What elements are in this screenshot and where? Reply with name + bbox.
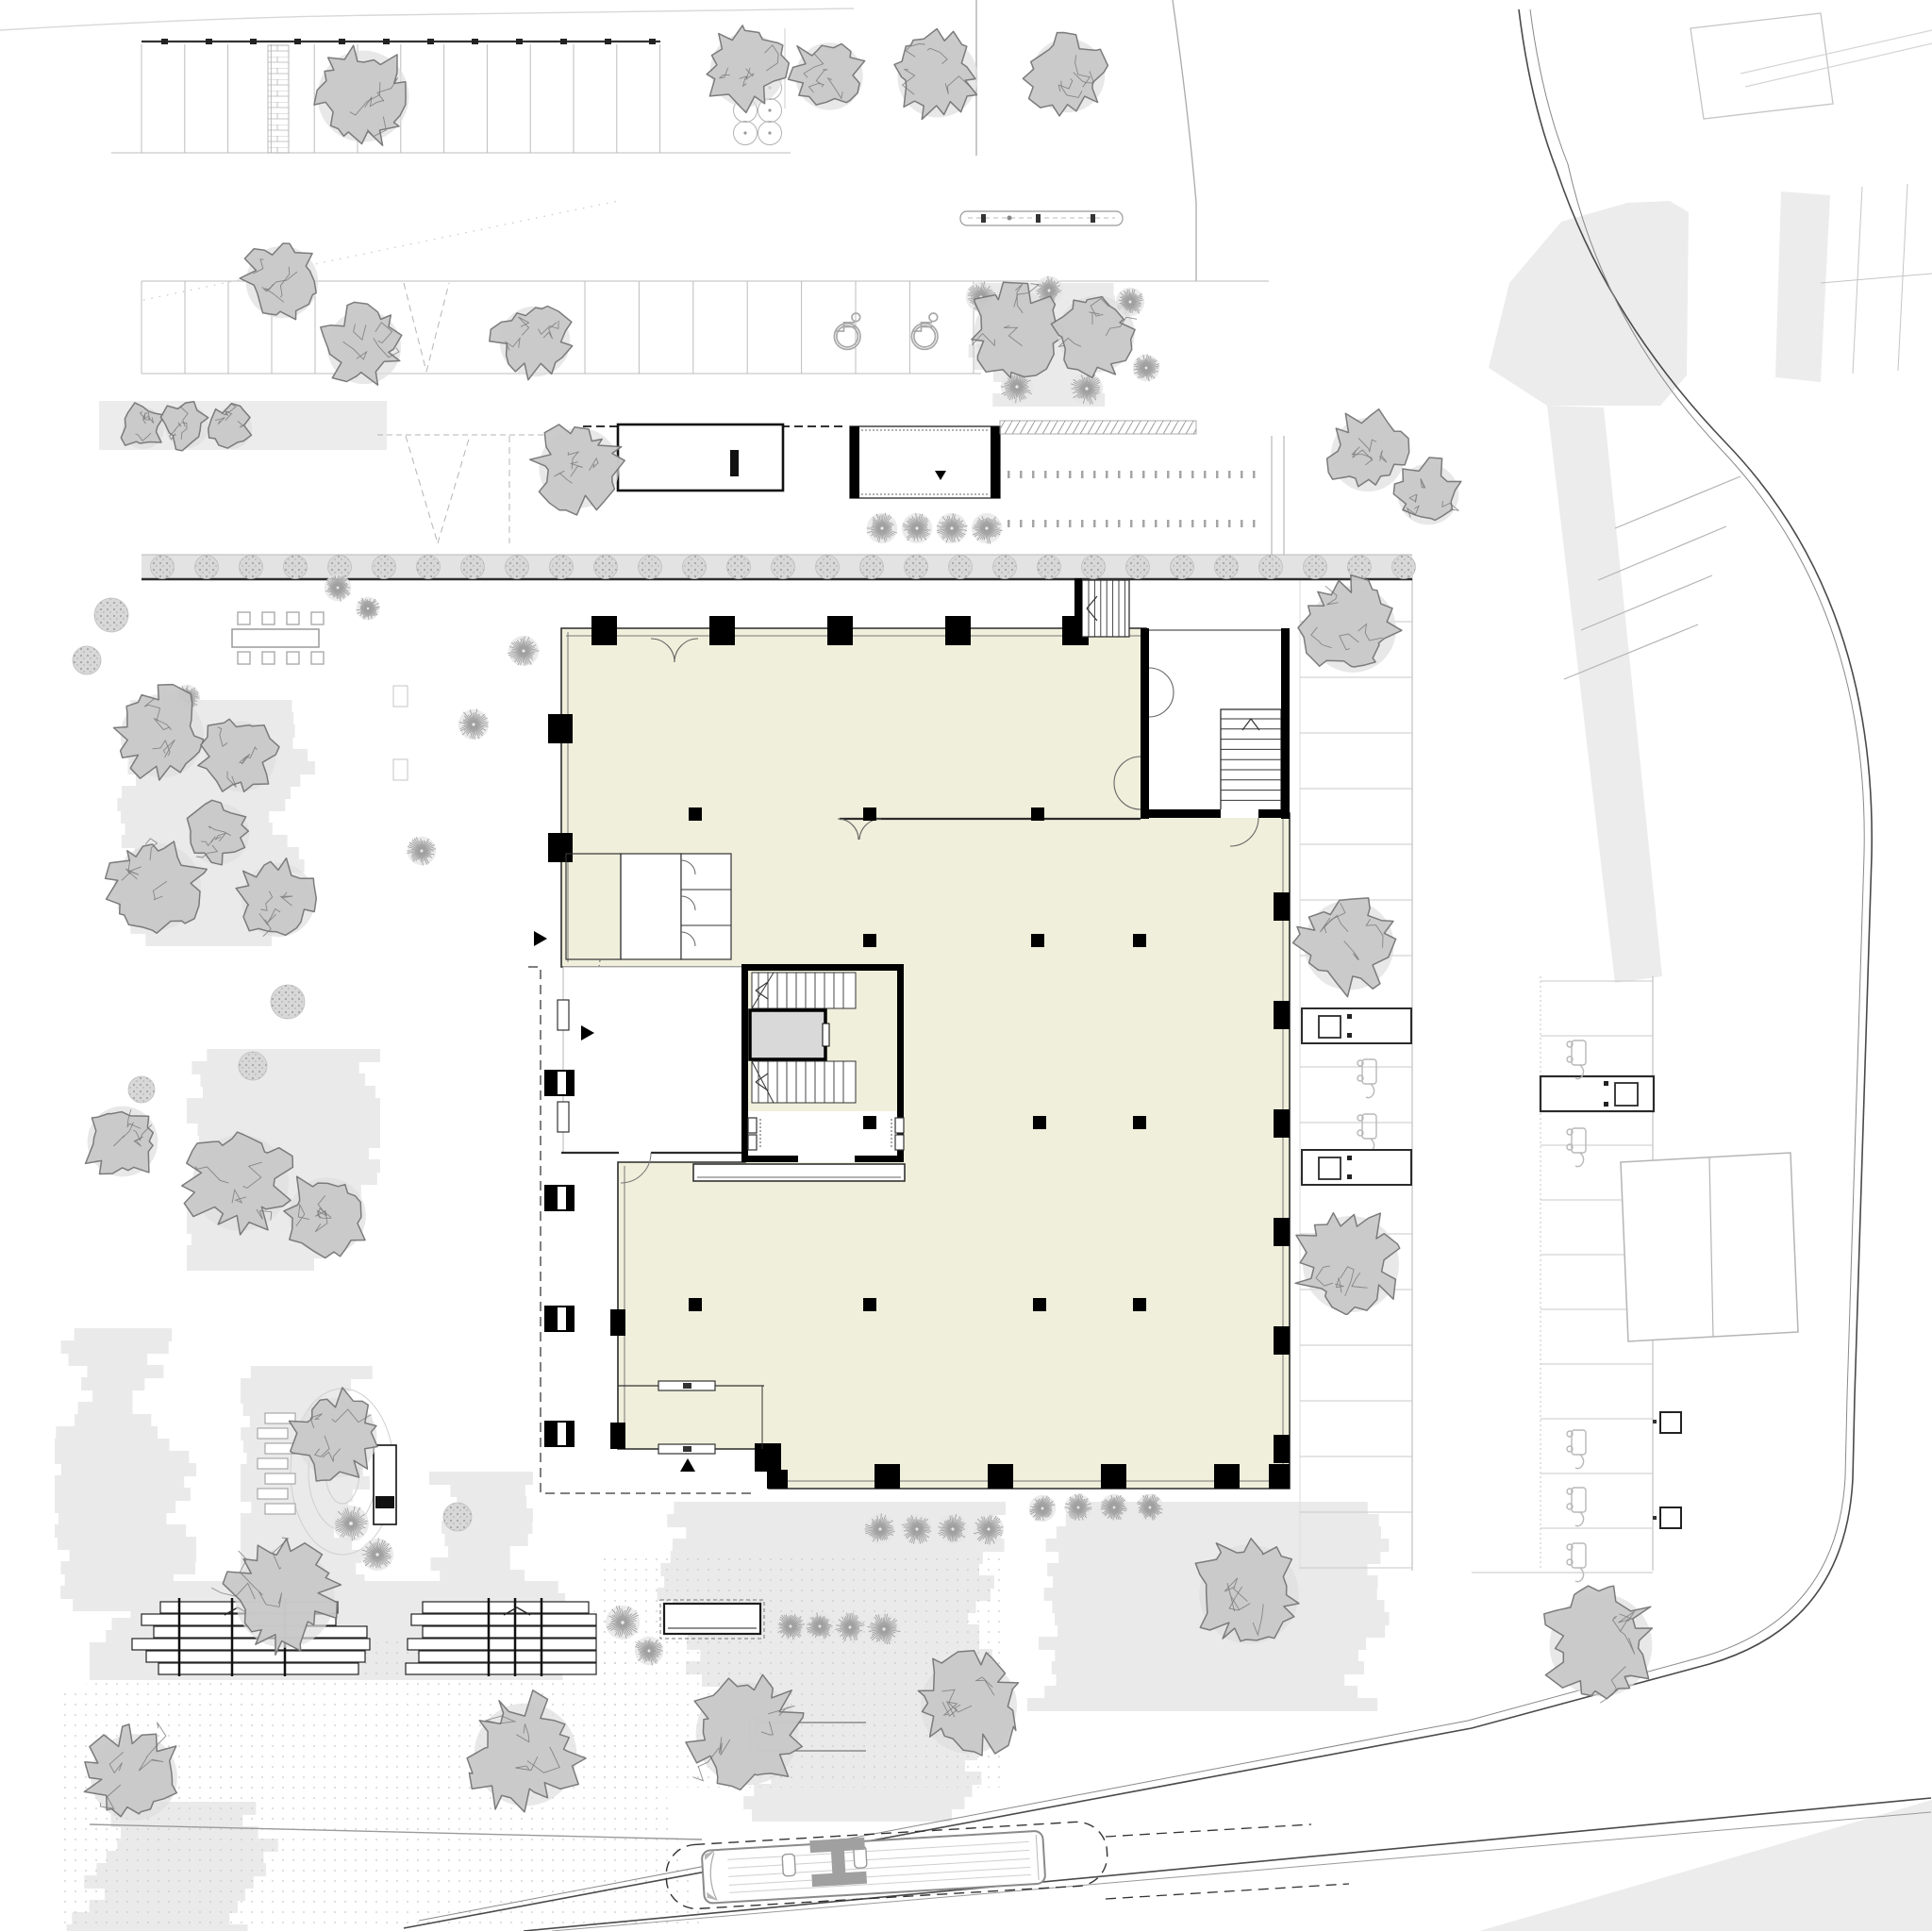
tree	[321, 302, 402, 385]
marker-dot	[1653, 1516, 1657, 1520]
wall-corner	[755, 1443, 781, 1472]
charging-box	[1660, 1507, 1681, 1528]
bike-shelter	[850, 426, 1000, 498]
dotted-guide	[143, 201, 618, 300]
neighbor-parcel	[1489, 201, 1689, 406]
lobby-door-gap	[619, 1150, 651, 1156]
picnic-table	[232, 629, 319, 647]
wall-pier	[1274, 1326, 1290, 1355]
scooter-icon	[1567, 1040, 1586, 1079]
park-slat	[393, 686, 408, 707]
diagonal-path	[1547, 406, 1662, 983]
wall-pier	[1214, 1464, 1240, 1489]
neighbor-strip	[1775, 191, 1830, 382]
stair-flight	[752, 1061, 856, 1103]
park-lawn	[55, 1328, 196, 1611]
building	[528, 471, 1290, 1493]
bench-slat	[406, 1663, 596, 1674]
wall-pier	[548, 714, 573, 743]
lane-dash	[1106, 1824, 1311, 1837]
interior-column	[863, 807, 876, 821]
window-tick	[558, 1102, 569, 1132]
tram-door	[782, 1854, 795, 1876]
wall-pier	[827, 616, 853, 645]
tree	[530, 424, 625, 515]
shrub-ball	[271, 985, 305, 1019]
scooter-icon	[1567, 1543, 1586, 1582]
court-door-gap	[1221, 809, 1258, 818]
outbuilding-pier	[730, 450, 739, 476]
tree	[1544, 1586, 1653, 1703]
wall-pier	[1274, 1109, 1290, 1138]
court-wall	[1141, 809, 1290, 818]
bench-slat	[158, 1663, 358, 1674]
hedge-fence	[1000, 421, 1196, 434]
stair-wall	[1074, 578, 1082, 639]
sunburst-shrub	[776, 1612, 805, 1640]
tree	[1298, 575, 1402, 673]
interior-column	[863, 1298, 876, 1311]
stool	[1347, 1156, 1352, 1160]
bench-slat	[423, 1602, 589, 1613]
plaza-bench	[664, 1604, 760, 1634]
tree	[894, 29, 978, 120]
wall-pier	[591, 616, 617, 645]
stool	[1604, 1081, 1608, 1086]
entrance-canopy	[693, 1164, 905, 1181]
sunburst-shrub	[325, 574, 352, 602]
shop-window-tick	[683, 1446, 691, 1452]
sunburst-shrub	[1029, 1495, 1057, 1523]
sunburst-shrub	[361, 1538, 393, 1571]
picnic-table	[1319, 1157, 1341, 1179]
core-wall	[741, 964, 904, 971]
canopy-column	[544, 1306, 575, 1332]
wall-corner	[1269, 1464, 1290, 1489]
picnic-table	[1319, 1016, 1341, 1038]
bench-slat	[423, 1626, 596, 1638]
charging-box	[1660, 1412, 1681, 1433]
stool	[1347, 1033, 1352, 1038]
shrub-ball	[94, 598, 128, 632]
picnic-table	[1615, 1083, 1638, 1106]
stool	[1347, 1014, 1352, 1019]
sunburst-shrub	[458, 709, 489, 741]
mound-slat	[258, 1489, 288, 1499]
canopy-column	[544, 1185, 575, 1211]
tree	[1295, 1213, 1400, 1315]
neighbor-line	[1740, 30, 1932, 74]
tree	[114, 685, 205, 780]
scooter-icon	[1567, 1128, 1586, 1167]
sunburst-shrub	[357, 597, 380, 621]
interior-column	[1033, 1298, 1046, 1311]
sunburst-shrub	[1137, 1494, 1164, 1522]
tree	[314, 45, 408, 145]
interior-column	[1033, 1116, 1046, 1129]
elevator	[750, 1010, 825, 1059]
interior-column	[689, 1298, 702, 1311]
wall-pier	[945, 616, 971, 645]
sunburst-shrub	[902, 1514, 932, 1544]
interior-column	[1133, 934, 1146, 947]
guardrail-post	[1036, 214, 1041, 223]
sunburst-shrub	[867, 513, 897, 543]
bench-slat	[411, 1614, 596, 1625]
core-wall	[741, 964, 748, 1162]
planting-circle	[758, 122, 782, 145]
bench-slat	[408, 1639, 596, 1650]
interior-column	[863, 1116, 876, 1129]
wall-pier	[1274, 892, 1290, 921]
court-wall	[1141, 628, 1149, 819]
interior-column	[1133, 1298, 1146, 1311]
sunburst-shrub	[1133, 355, 1160, 382]
guardrail-dot	[1008, 216, 1012, 221]
sunburst-shrub	[1101, 1494, 1128, 1522]
sunburst-shrub	[938, 1514, 968, 1544]
mound-bench-band	[375, 1496, 394, 1508]
stool	[1604, 1102, 1608, 1107]
sunburst-shrub	[806, 1612, 834, 1640]
sunburst-shrub	[974, 1514, 1004, 1545]
sunburst-shrub	[333, 1506, 369, 1541]
boundary-curve	[0, 8, 854, 30]
wall-pier	[709, 616, 735, 645]
path-edge	[1173, 0, 1196, 281]
sliding-door	[895, 1135, 904, 1150]
sliding-door	[748, 1118, 757, 1133]
lane-dash	[1106, 1884, 1349, 1899]
wall-pier	[1274, 1218, 1290, 1246]
wall-pier	[1274, 1435, 1290, 1463]
bench-slat	[132, 1639, 370, 1650]
accessible-parking-icon	[911, 313, 938, 349]
interior-column	[1031, 807, 1044, 821]
mound-slat	[258, 1428, 288, 1439]
sunburst-shrub	[902, 513, 932, 543]
shrub-ball	[239, 1052, 267, 1080]
core-door-gap	[798, 1156, 855, 1162]
neighbor-line	[1745, 43, 1932, 87]
picnic-chair	[262, 612, 275, 624]
guardrail-post	[1091, 214, 1095, 223]
wall-pier	[548, 833, 573, 862]
interior-column	[1031, 934, 1044, 947]
marking-dashed	[404, 283, 426, 372]
parking-grid	[1898, 184, 1907, 371]
wall-pier	[1274, 1001, 1290, 1029]
elevator-door	[823, 1024, 829, 1046]
tree	[1327, 409, 1409, 491]
accessible-parking-icon	[834, 313, 860, 349]
planting-circle	[734, 122, 758, 145]
wall-pier	[1101, 1464, 1126, 1489]
tree	[490, 307, 573, 380]
canopy-column	[544, 1070, 575, 1096]
shrub-ball	[128, 1076, 155, 1103]
bike-shelter-wall	[991, 426, 1000, 498]
stair-flight	[752, 973, 856, 1008]
wall-pier	[988, 1464, 1013, 1489]
picnic-chair	[311, 612, 324, 624]
picnic-chair	[238, 612, 250, 624]
sunburst-shrub	[972, 513, 1002, 544]
interior-column	[1133, 1116, 1146, 1129]
entry-arrow	[680, 1458, 695, 1472]
sliding-door	[895, 1118, 904, 1133]
sliding-door	[748, 1135, 757, 1150]
window-tick	[558, 1000, 569, 1030]
scooter-icon	[1357, 1114, 1376, 1153]
court-wall	[1281, 628, 1290, 819]
tree	[240, 243, 318, 320]
mound-slat	[265, 1504, 295, 1514]
marking-dashed	[406, 436, 438, 543]
stool	[1347, 1174, 1352, 1179]
tree	[1023, 33, 1108, 116]
sunburst-shrub	[508, 636, 539, 666]
bench-slat	[419, 1651, 596, 1662]
sunburst-shrub	[635, 1637, 663, 1666]
marking-dashed	[438, 436, 470, 543]
sunburst-shrub	[1071, 373, 1103, 405]
mound-slat	[265, 1473, 295, 1484]
wc-cells	[681, 854, 731, 959]
wall-corner	[767, 1470, 788, 1489]
wall-pier	[874, 1464, 900, 1489]
tram-h-mark	[830, 1839, 846, 1886]
picnic-chair	[287, 652, 299, 664]
entry-arrow	[534, 931, 547, 946]
interior-column	[689, 807, 702, 821]
stall-line	[1300, 566, 1412, 1568]
marking-dashed	[426, 283, 449, 372]
marker-dot	[1653, 1420, 1657, 1423]
grass-tick	[1008, 520, 1256, 527]
tree	[1393, 458, 1461, 524]
grass-tick	[1008, 471, 1256, 478]
scooter-icon	[1567, 1488, 1586, 1526]
angled-stall	[1615, 476, 1740, 528]
tree	[789, 42, 865, 109]
sunburst-shrub	[937, 513, 968, 543]
wall-pier	[610, 1423, 625, 1449]
mound-slat	[258, 1458, 288, 1469]
tram	[664, 1821, 1108, 1911]
shrub-ball	[443, 1503, 472, 1531]
stall-line	[585, 281, 909, 374]
parking-grid	[1821, 274, 1932, 283]
neighbor-building	[1690, 13, 1833, 119]
lobby	[563, 967, 743, 1153]
canopy-column	[544, 1421, 575, 1447]
wall-pier	[610, 1309, 625, 1336]
scene	[0, 0, 1932, 1931]
exterior-stair	[1082, 580, 1129, 637]
court-stair	[1221, 709, 1281, 811]
picnic-chair	[287, 612, 299, 624]
park-lawn	[429, 1472, 533, 1595]
sunburst-shrub	[407, 837, 436, 866]
tree	[707, 25, 789, 113]
outbuilding	[618, 424, 783, 491]
shrub-ball	[73, 646, 101, 674]
site-plan-page	[0, 0, 1932, 1931]
wc-corridor	[621, 854, 681, 959]
picnic-chair	[311, 652, 324, 664]
mound-bench	[374, 1445, 396, 1524]
shop-window-tick	[683, 1383, 691, 1389]
scooter-icon	[1567, 1430, 1586, 1469]
sunburst-shrub	[606, 1606, 640, 1640]
park-slat	[393, 759, 408, 780]
picnic-chair	[238, 652, 250, 664]
scooter-icon	[1357, 1059, 1376, 1098]
tree	[86, 1107, 158, 1177]
brick-wall	[268, 45, 289, 153]
site-plan-drawing	[0, 0, 1932, 1931]
tree	[1293, 898, 1396, 997]
picnic-chair	[262, 652, 275, 664]
bike-shelter-wall	[850, 426, 859, 498]
guardrail-post	[981, 214, 986, 223]
interior-column	[863, 934, 876, 947]
